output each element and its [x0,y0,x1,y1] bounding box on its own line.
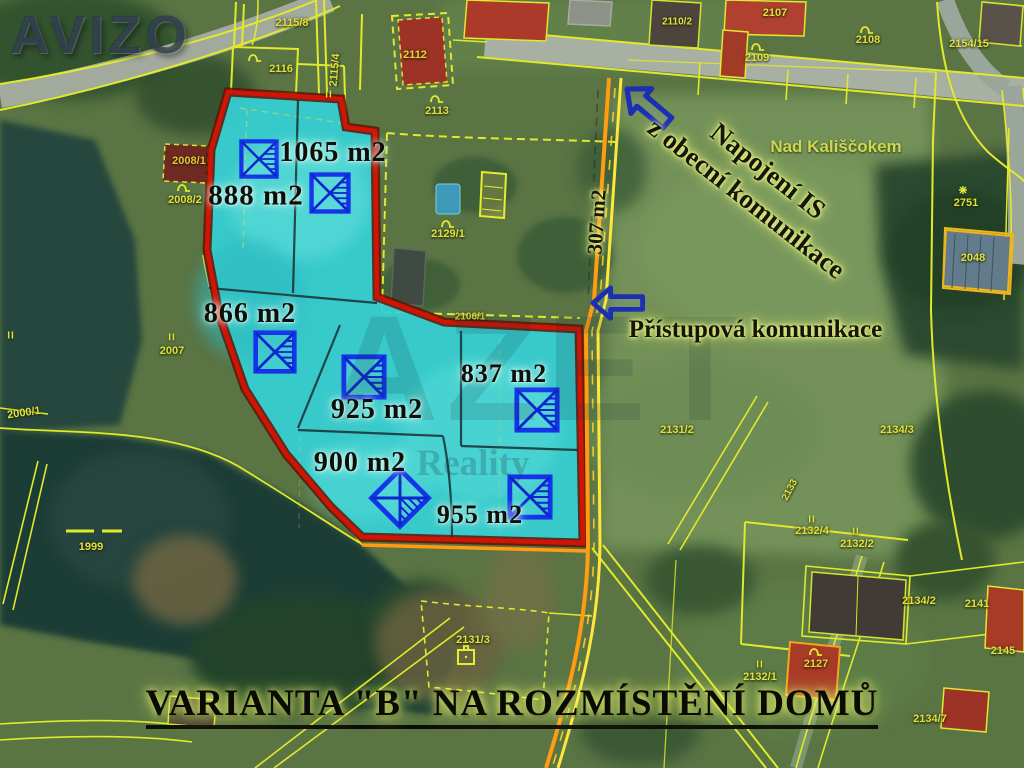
parcel-number-label: 2109 [745,52,769,64]
parcel-number-label: 2132/2 [840,538,874,550]
building [985,586,1024,652]
parcel-number-label: 2154/15 [949,38,989,50]
parcel-number-label: 2008/2 [168,194,202,206]
parcel-number-label: 2134/3 [880,424,914,436]
building [480,172,506,218]
access-road-annotation: Přístupová komunikace [598,316,913,344]
plot-area-label: 837 m2 [461,359,547,389]
place-name-label: Nad Kališčokem [770,137,901,157]
meadow-icon: II [852,527,860,538]
plot-area-label: 900 m2 [314,447,406,479]
parcel-number-label: 2108 [856,34,880,46]
meadow-icon: II [808,515,816,526]
plot-area-label: 1065 m2 [279,137,386,169]
parcel-number-label: 2113 [425,105,449,117]
parcel-number-label: 2107 [763,7,787,19]
parcel-number-label: 2110/2 [662,17,692,28]
parcel-number-label: 2106/1 [455,312,486,323]
house-symbol [241,141,276,176]
avizo-logo: AVIZO [10,4,191,66]
meadow-icon: II [7,331,15,342]
swimming-pool [436,184,460,214]
meadow-icon: II [325,90,333,101]
parcel-number-label: 1999 [79,541,103,553]
parcel-number-label: 2131/2 [660,424,694,436]
house-symbol [256,333,295,372]
flower-icon [959,186,967,194]
building [809,572,906,640]
parcel-number-label: 2007 [160,345,184,357]
parcel-number-label: 2141 [965,598,989,610]
map-title: VARIANTA "B" NA ROZMÍSTĚNÍ DOMŮ [0,682,1024,725]
meadow-icon: II [168,333,176,344]
map-canvas: AZET Reality 888 m2 1065 m2 866 m2 925 m… [0,0,1024,768]
plot-area-label: 955 m2 [437,500,523,530]
parcel-number-label: 2134/2 [902,595,936,607]
parcel-number-label: 2132/4 [795,525,829,537]
road-area-label: 307 m2 [582,189,611,255]
plot-area-label: 866 m2 [204,298,296,330]
parcel-number-label: 2048 [961,252,985,264]
parcel-number-label: 2131/3 [456,634,490,646]
meadow-icon: II [756,660,764,671]
parcel-number-label: 2127 [804,658,828,670]
parcel-number-label: 2116 [269,63,293,75]
parcel-number-label: 2145 [991,645,1015,657]
house-symbol [312,175,349,212]
building [464,0,549,41]
plot-area-label: 888 m2 [208,180,303,213]
azet-watermark-sub: Reality [388,442,558,485]
parcel-number-label: 2008/1 [172,155,206,167]
plot-area-label: 925 m2 [331,394,423,426]
parcel-number-label: 2129/1 [431,228,465,240]
parcel-number-label: 2751 [954,197,978,209]
parcel-number-label: 2115/8 [275,17,308,29]
parcel-number-label: 2112 [403,49,427,61]
map-title-text: VARIANTA "B" NA ROZMÍSTĚNÍ DOMŮ [146,683,879,729]
